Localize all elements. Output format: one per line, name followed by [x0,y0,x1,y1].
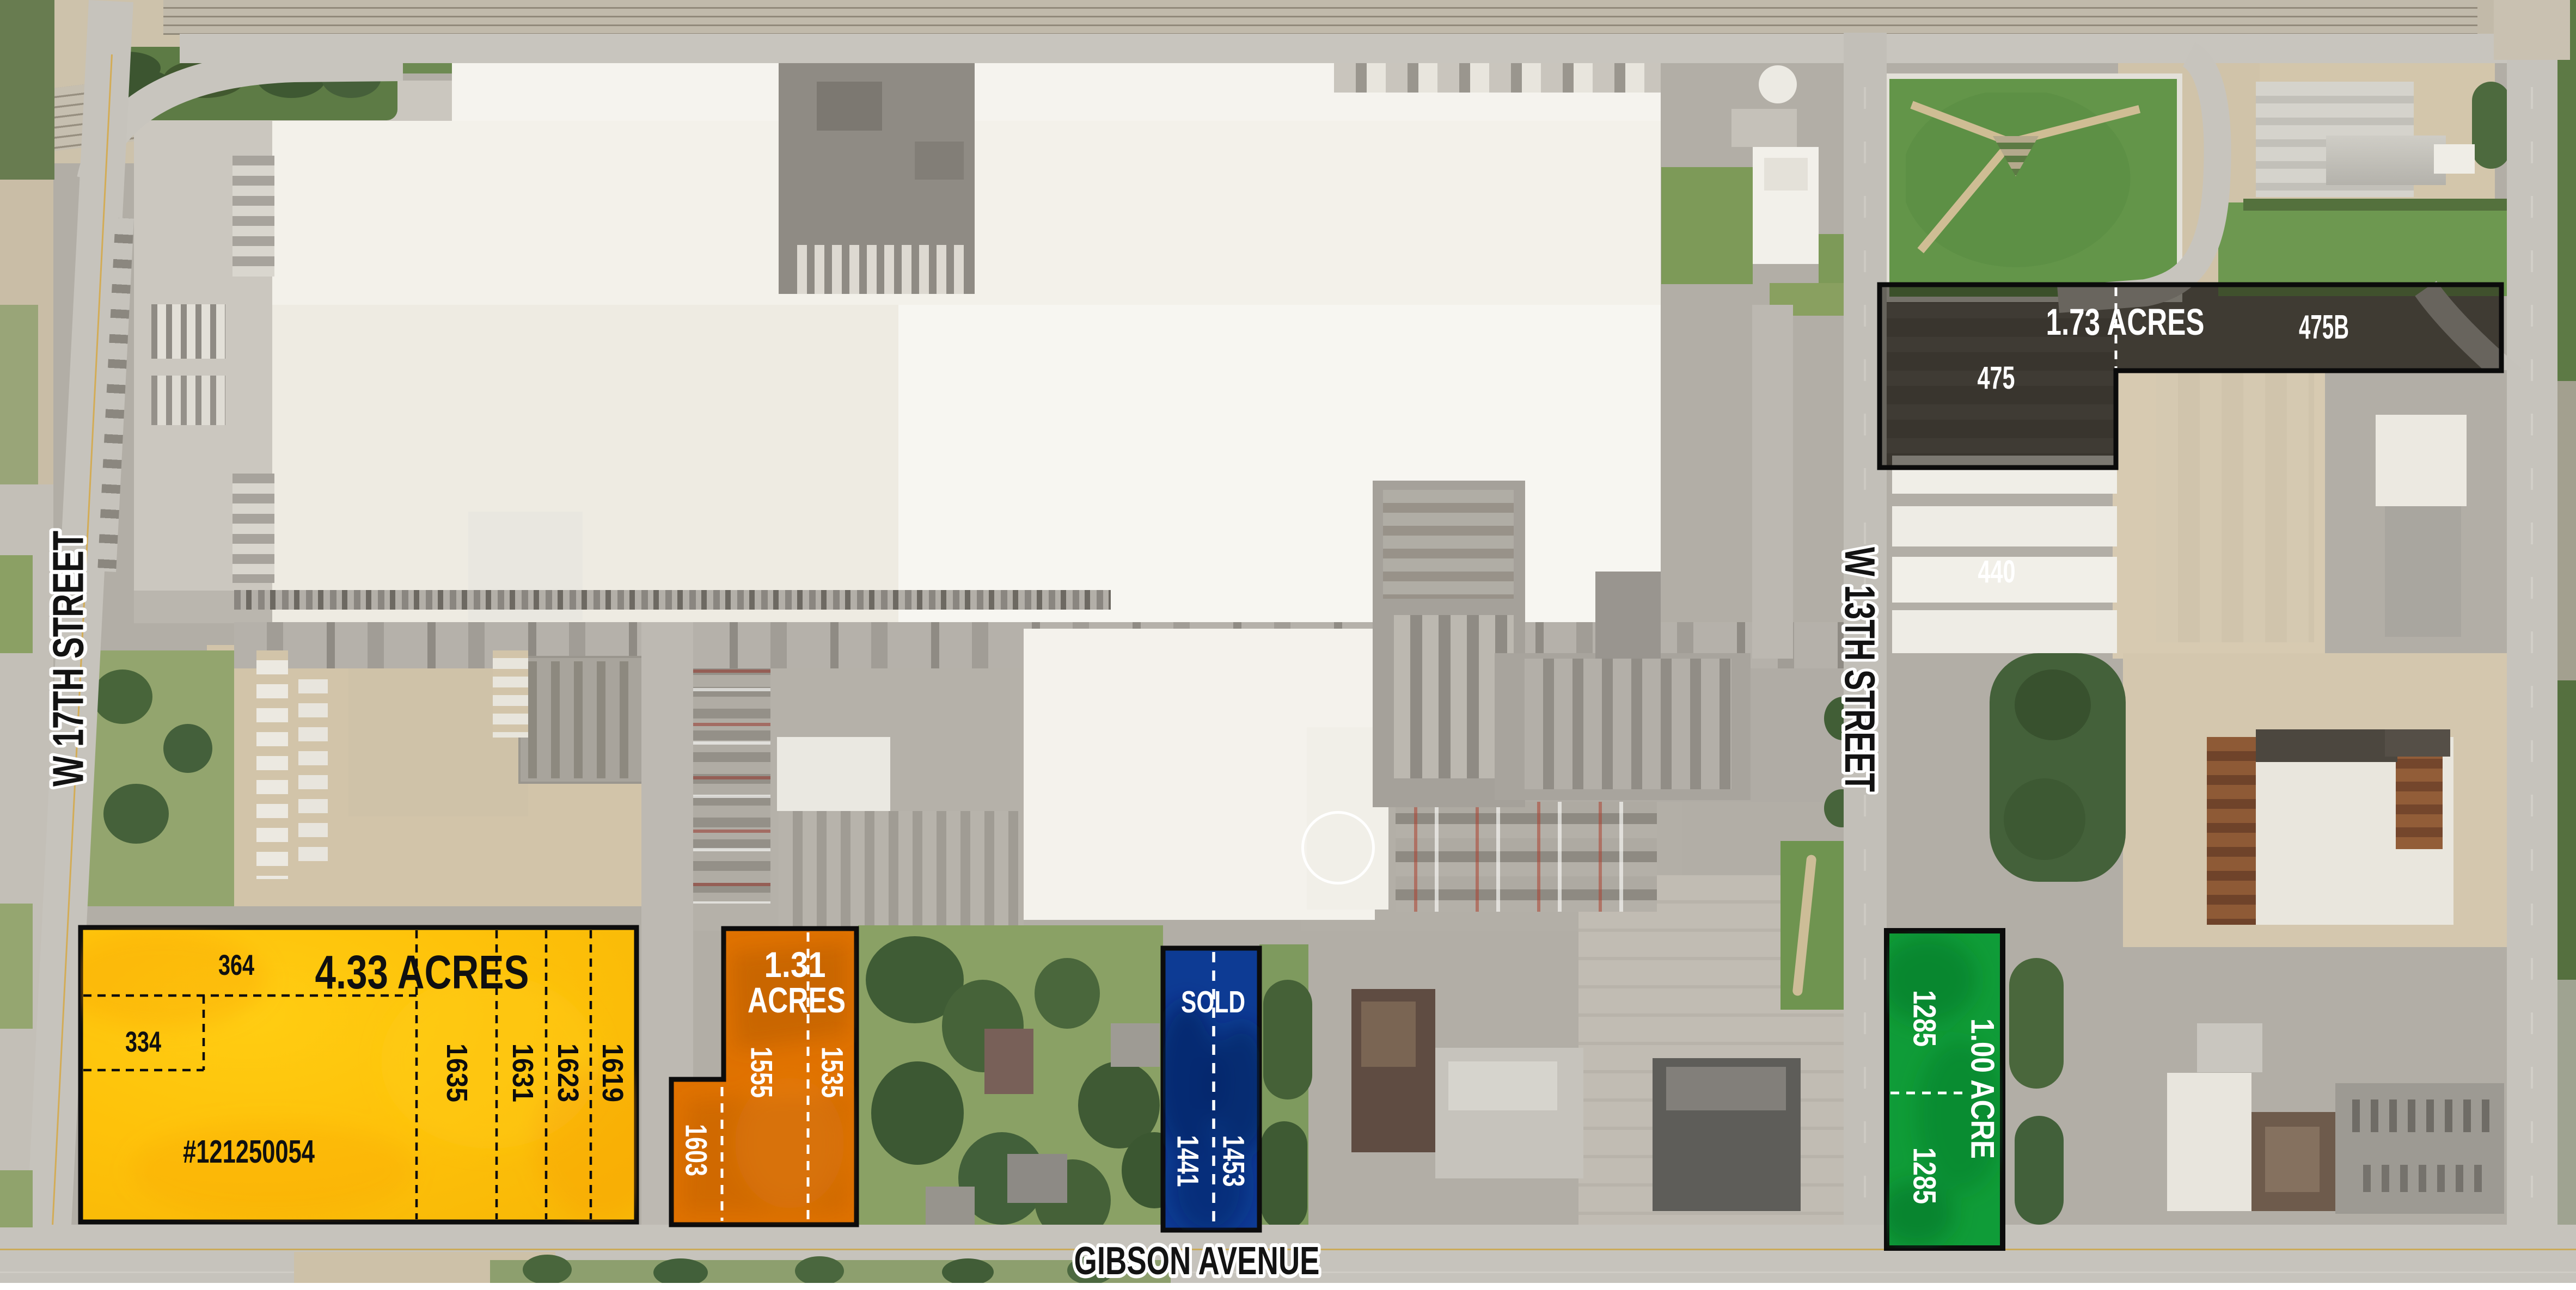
svg-text:1453: 1453 [1217,1135,1251,1187]
svg-text:1.00 ACRE: 1.00 ACRE [1965,1018,2001,1159]
svg-text:440: 440 [1978,554,2016,589]
svg-text:#121250054: #121250054 [183,1134,315,1170]
svg-text:1635: 1635 [440,1043,473,1102]
svg-text:1623: 1623 [552,1043,584,1102]
svg-text:SOLD: SOLD [1181,985,1245,1019]
svg-text:1285: 1285 [1907,990,1942,1047]
svg-text:1.73 ACRES: 1.73 ACRES [2046,301,2205,343]
svg-text:1619: 1619 [596,1043,629,1102]
svg-text:ACRES: ACRES [748,980,846,1020]
svg-text:1441: 1441 [1171,1135,1206,1187]
svg-text:1.31: 1.31 [764,944,826,985]
svg-text:W 13TH STREET: W 13TH STREET [1836,547,1884,792]
svg-text:334: 334 [125,1026,161,1058]
svg-text:475: 475 [1978,360,2015,396]
svg-text:1285: 1285 [1907,1147,1942,1204]
svg-text:475B: 475B [2299,309,2349,346]
svg-text:364: 364 [218,949,254,981]
svg-text:1631: 1631 [506,1043,539,1102]
svg-text:1555: 1555 [745,1047,779,1098]
svg-text:W 17TH STREET: W 17TH STREET [44,531,93,787]
svg-text:GIBSON AVENUE: GIBSON AVENUE [1074,1239,1320,1283]
svg-text:1603: 1603 [680,1124,714,1176]
svg-text:4.33 ACRES: 4.33 ACRES [315,946,529,999]
svg-text:1535: 1535 [816,1047,850,1098]
